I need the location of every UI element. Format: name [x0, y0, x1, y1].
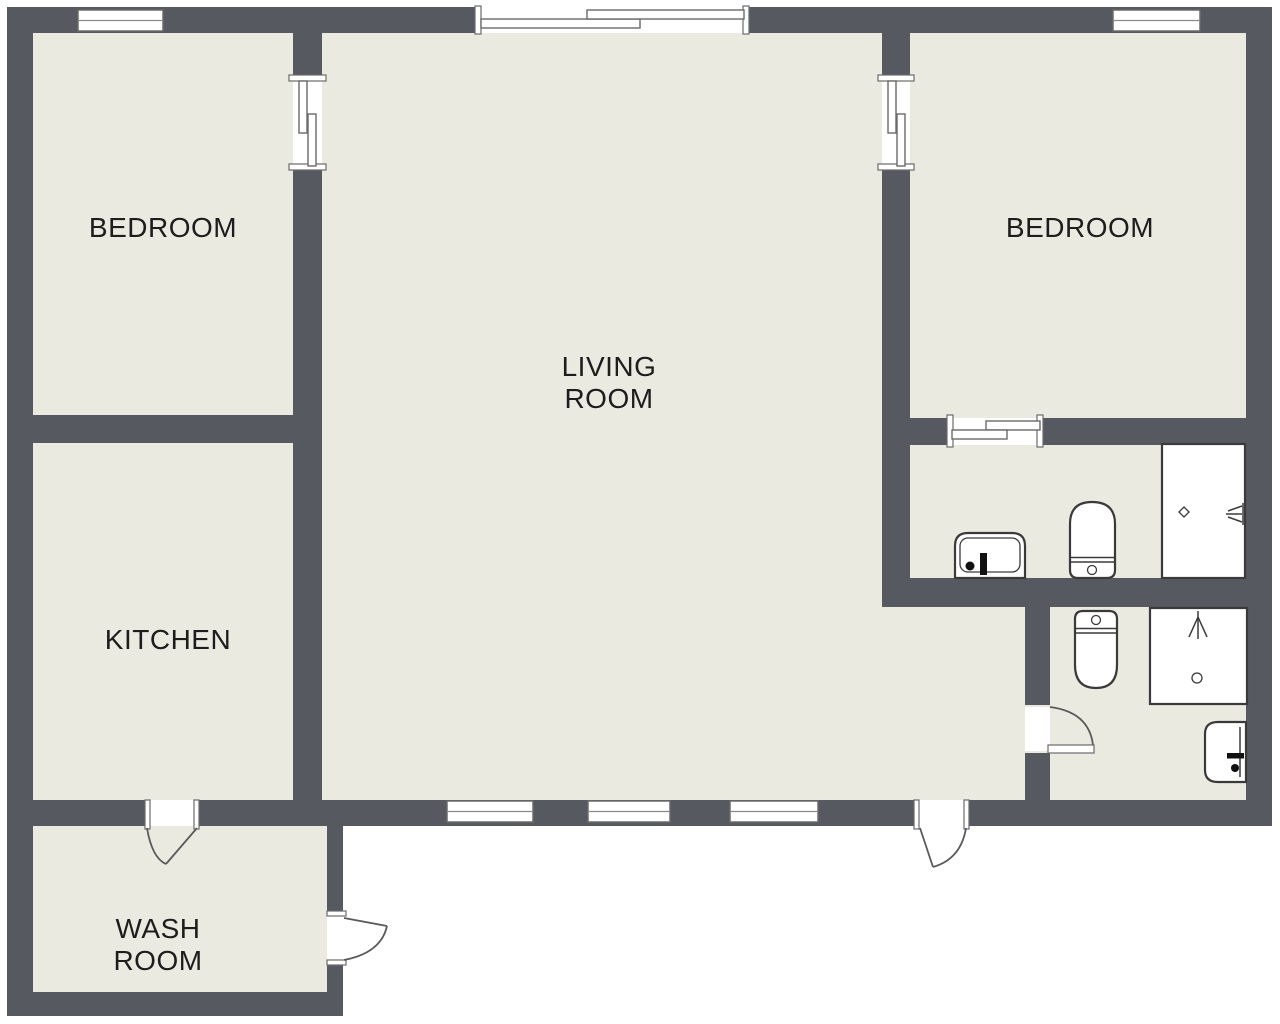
living-room-label-line1: LIVING [562, 351, 657, 382]
sliding-door-bedroom-left [289, 75, 326, 170]
toilet-icon [1075, 611, 1117, 688]
window-bottom-3 [730, 801, 818, 822]
toilet-icon [1070, 502, 1115, 578]
window-top-right [1113, 10, 1200, 31]
floors [33, 33, 1246, 992]
sliding-panel [308, 114, 316, 166]
sliding-panel [952, 430, 1007, 439]
sliding-panel [888, 81, 896, 133]
wall-exterior-left [7, 7, 33, 1016]
sliding-panel [897, 114, 905, 166]
wall-washroom-bottom [7, 992, 343, 1016]
wall-bath-lower-lower [1025, 753, 1050, 800]
bedroom-right-label: BEDROOM [1006, 212, 1154, 243]
sliding-door-bedroom-right [878, 75, 914, 170]
sliding-door-bathroom-upper [947, 415, 1043, 447]
sliding-panel [481, 19, 640, 28]
wall-living-right [882, 170, 910, 607]
floor-plan-canvas: BEDROOM BEDROOM LIVING ROOM KITCHEN WASH… [0, 0, 1280, 1024]
wall-exterior-right [1246, 7, 1272, 826]
door-leaf [1048, 745, 1094, 753]
floor-plan: BEDROOM BEDROOM LIVING ROOM KITCHEN WASH… [0, 0, 1280, 1024]
sliding-panel [587, 10, 744, 19]
living-room-label-line2: ROOM [564, 383, 653, 414]
sliding-door-living-top [475, 6, 749, 34]
door-main-entrance [914, 800, 969, 867]
wall-bedroom-bath-right [1040, 418, 1246, 445]
wall-bath-lower-upper [1025, 607, 1050, 705]
window-bottom-2 [588, 801, 670, 822]
kitchen-label: KITCHEN [105, 624, 231, 655]
wall-bedroom-right-upper [882, 33, 910, 78]
wash-room-label-line1: WASH [116, 913, 201, 944]
wall-bath-upper-bottom [882, 578, 1246, 607]
window-top-left [78, 10, 163, 31]
wall-bedroom-left-upper [293, 33, 322, 78]
shower-icon [1150, 608, 1247, 704]
wall-bedroom-bath-left [910, 418, 950, 445]
shower-icon [1162, 444, 1245, 578]
sliding-panel [299, 81, 307, 133]
sliding-panel [986, 421, 1040, 430]
bedroom-left-label: BEDROOM [89, 212, 237, 243]
wall-bedroom-left-kitchen [33, 415, 293, 443]
door-washroom-exterior [327, 911, 387, 965]
sink-icon [955, 533, 1025, 578]
wall-kitchen-living [293, 170, 322, 800]
window-bottom-1 [447, 801, 533, 822]
wash-room-label-line2: ROOM [113, 945, 202, 976]
sink-icon [1205, 722, 1246, 782]
